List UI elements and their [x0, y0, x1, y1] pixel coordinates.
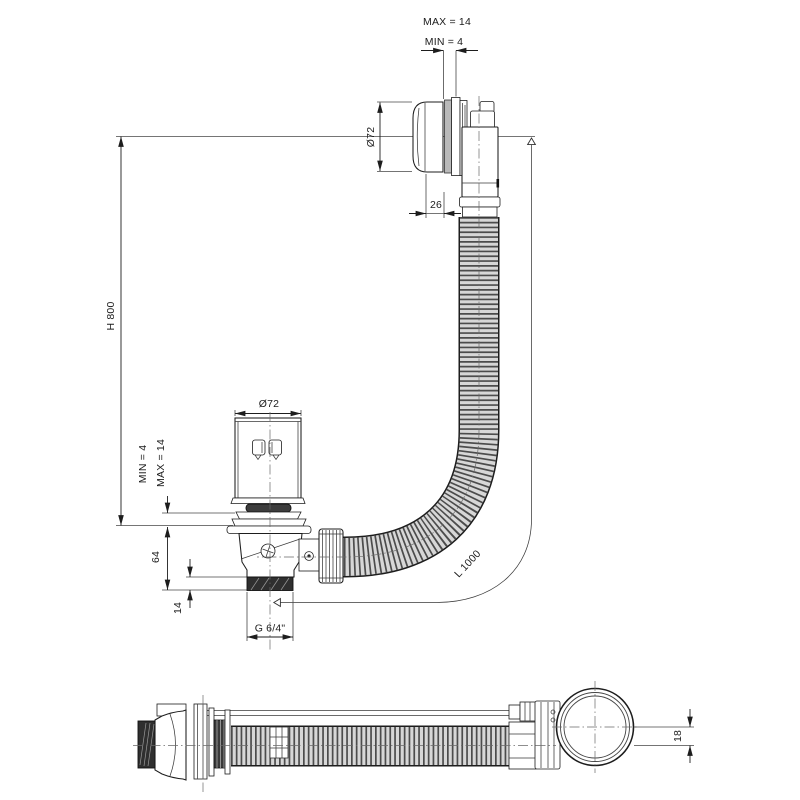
overflow-diameter-label: Ø72 [365, 127, 377, 147]
thread-length-label: 14 [172, 602, 184, 614]
side-view-body [155, 710, 186, 780]
hose-label-clip [270, 727, 288, 758]
overflow-hose-ring [460, 197, 501, 207]
flexible-hose [338, 217, 479, 557]
hose-length-label: L 1000 [452, 548, 483, 580]
dimension-waste-diameter: Ø72 [235, 398, 301, 416]
side-view-flange [194, 704, 207, 779]
overflow-hose-nut [463, 207, 498, 217]
dimension-overflow-gap: MAX = 14 MIN = 4 [421, 16, 478, 99]
cable-tube [207, 711, 509, 716]
body-height-label: 64 [150, 551, 162, 563]
overflow-seal [445, 100, 452, 173]
plug-seal [246, 504, 291, 512]
waste-plug [235, 418, 301, 498]
overflow-min-label: MIN = 4 [425, 36, 463, 48]
overflow-body [462, 127, 498, 197]
dimension-body-height: 64 [150, 527, 168, 590]
side-view-gasket [214, 720, 225, 768]
dimension-cap-depth: 26 [409, 174, 461, 218]
side-view: 18 [133, 681, 694, 792]
waste-min-label: MIN = 4 [137, 445, 149, 483]
height-label: H 800 [105, 301, 117, 330]
overflow-elbow [535, 701, 560, 769]
waste-assembly [227, 418, 343, 591]
dimension-axis-offset: 18 [634, 709, 694, 763]
dimension-waste-gap: MIN = 4 MAX = 14 [137, 439, 168, 513]
waste-max-label: MAX = 14 [155, 439, 167, 487]
overflow-max-label: MAX = 14 [423, 16, 471, 28]
cap-depth-label: 26 [430, 199, 442, 211]
drawing-sheet: H 800 L 1000 MAX = 14 MIN = 4 [0, 0, 800, 800]
dimension-thread-length: 14 [172, 559, 190, 614]
axis-offset-label: 18 [672, 730, 684, 742]
overflow-faceplate [452, 98, 461, 176]
level-marker-top [528, 138, 536, 145]
level-marker-bottom [274, 599, 281, 607]
dimension-thread-size: G 6/4" [247, 592, 293, 641]
dimension-installation-height: H 800 [105, 137, 121, 526]
technical-drawing: H 800 L 1000 MAX = 14 MIN = 4 [0, 0, 800, 800]
waste-flange [227, 526, 311, 534]
waste-diameter-label: Ø72 [259, 398, 279, 410]
